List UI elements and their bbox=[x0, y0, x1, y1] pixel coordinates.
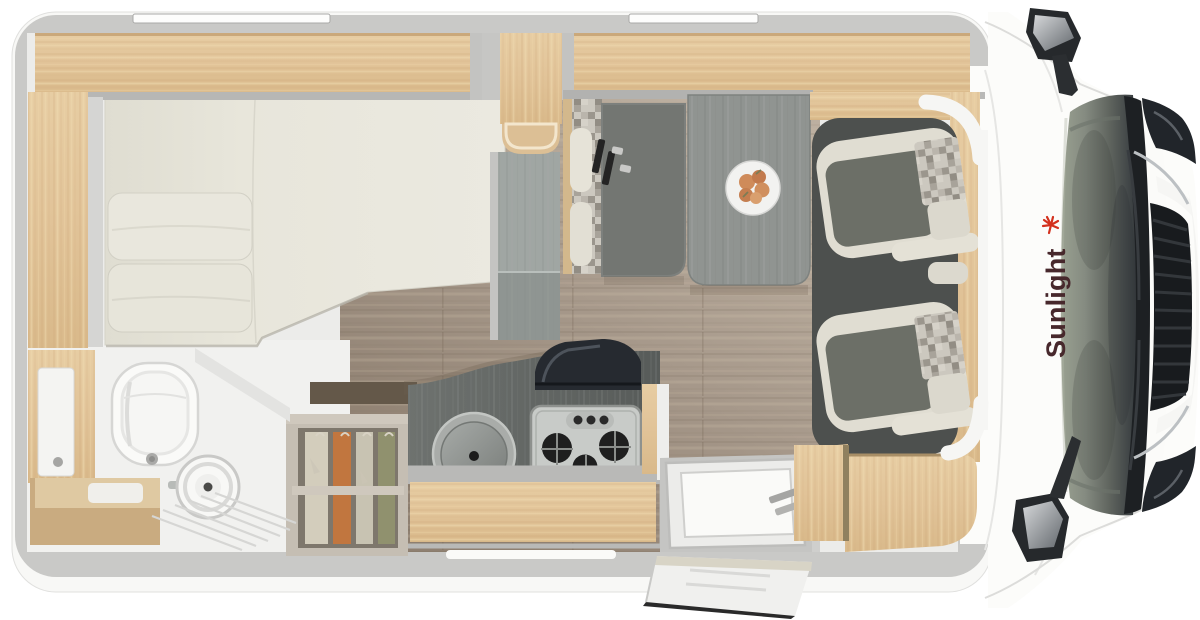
svg-text:Sunlight: Sunlight bbox=[1041, 248, 1071, 358]
